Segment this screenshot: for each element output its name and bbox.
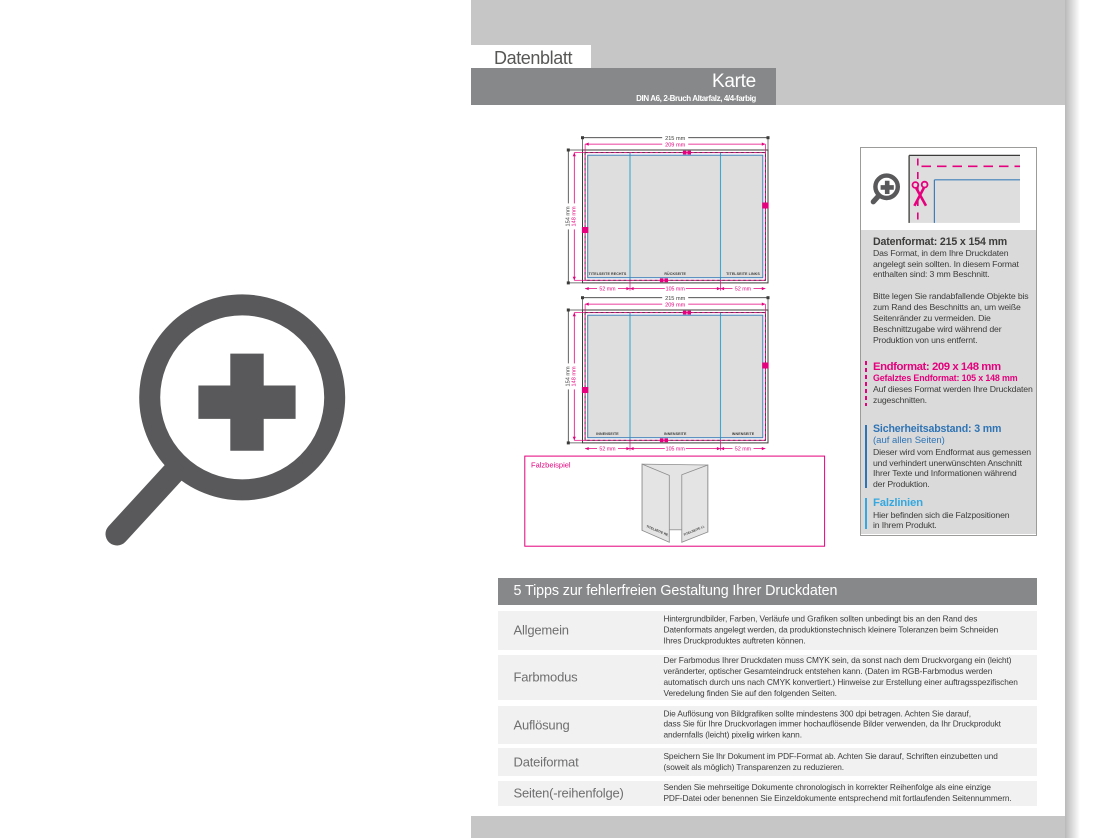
svg-text:105 mm: 105 mm [666, 287, 686, 293]
svg-text:RÜCKSEITE: RÜCKSEITE [664, 271, 686, 276]
svg-text:INNENSEITE: INNENSEITE [664, 432, 687, 436]
svg-text:INNENSEITE: INNENSEITE [732, 432, 755, 436]
svg-text:148 mm: 148 mm [571, 366, 577, 387]
svg-text:52 mm: 52 mm [599, 447, 616, 453]
svg-text:52 mm: 52 mm [735, 287, 752, 293]
svg-text:209 mm: 209 mm [665, 142, 686, 148]
svg-text:209 mm: 209 mm [665, 302, 686, 308]
svg-text:Falzbeispiel: Falzbeispiel [531, 461, 571, 470]
svg-text:52 mm: 52 mm [599, 287, 616, 293]
svg-text:105 mm: 105 mm [666, 447, 686, 453]
svg-text:INNENSEITE: INNENSEITE [596, 432, 619, 436]
svg-text:148 mm: 148 mm [571, 206, 577, 227]
svg-text:52 mm: 52 mm [735, 447, 752, 453]
svg-text:TITELSEITE LINKS: TITELSEITE LINKS [726, 272, 760, 276]
svg-text:TITELSEITE RECHTS: TITELSEITE RECHTS [589, 272, 627, 276]
